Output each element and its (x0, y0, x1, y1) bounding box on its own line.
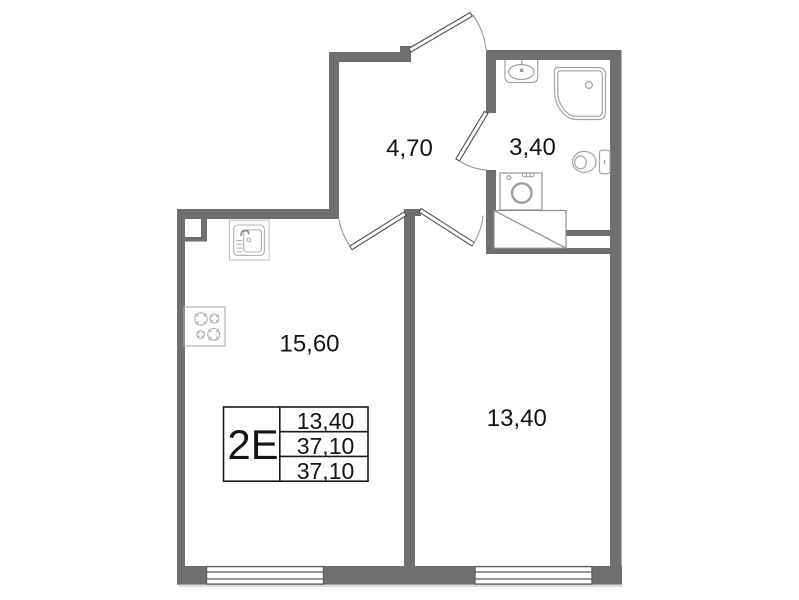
svg-text:37,10: 37,10 (297, 433, 355, 459)
svg-text:15,60: 15,60 (279, 331, 339, 358)
svg-text:13,40: 13,40 (487, 405, 547, 432)
svg-text:4,70: 4,70 (386, 135, 433, 162)
svg-text:13,40: 13,40 (297, 408, 355, 434)
svg-text:37,10: 37,10 (297, 458, 355, 484)
svg-text:2Е: 2Е (228, 421, 279, 468)
svg-text:3,40: 3,40 (509, 134, 556, 161)
